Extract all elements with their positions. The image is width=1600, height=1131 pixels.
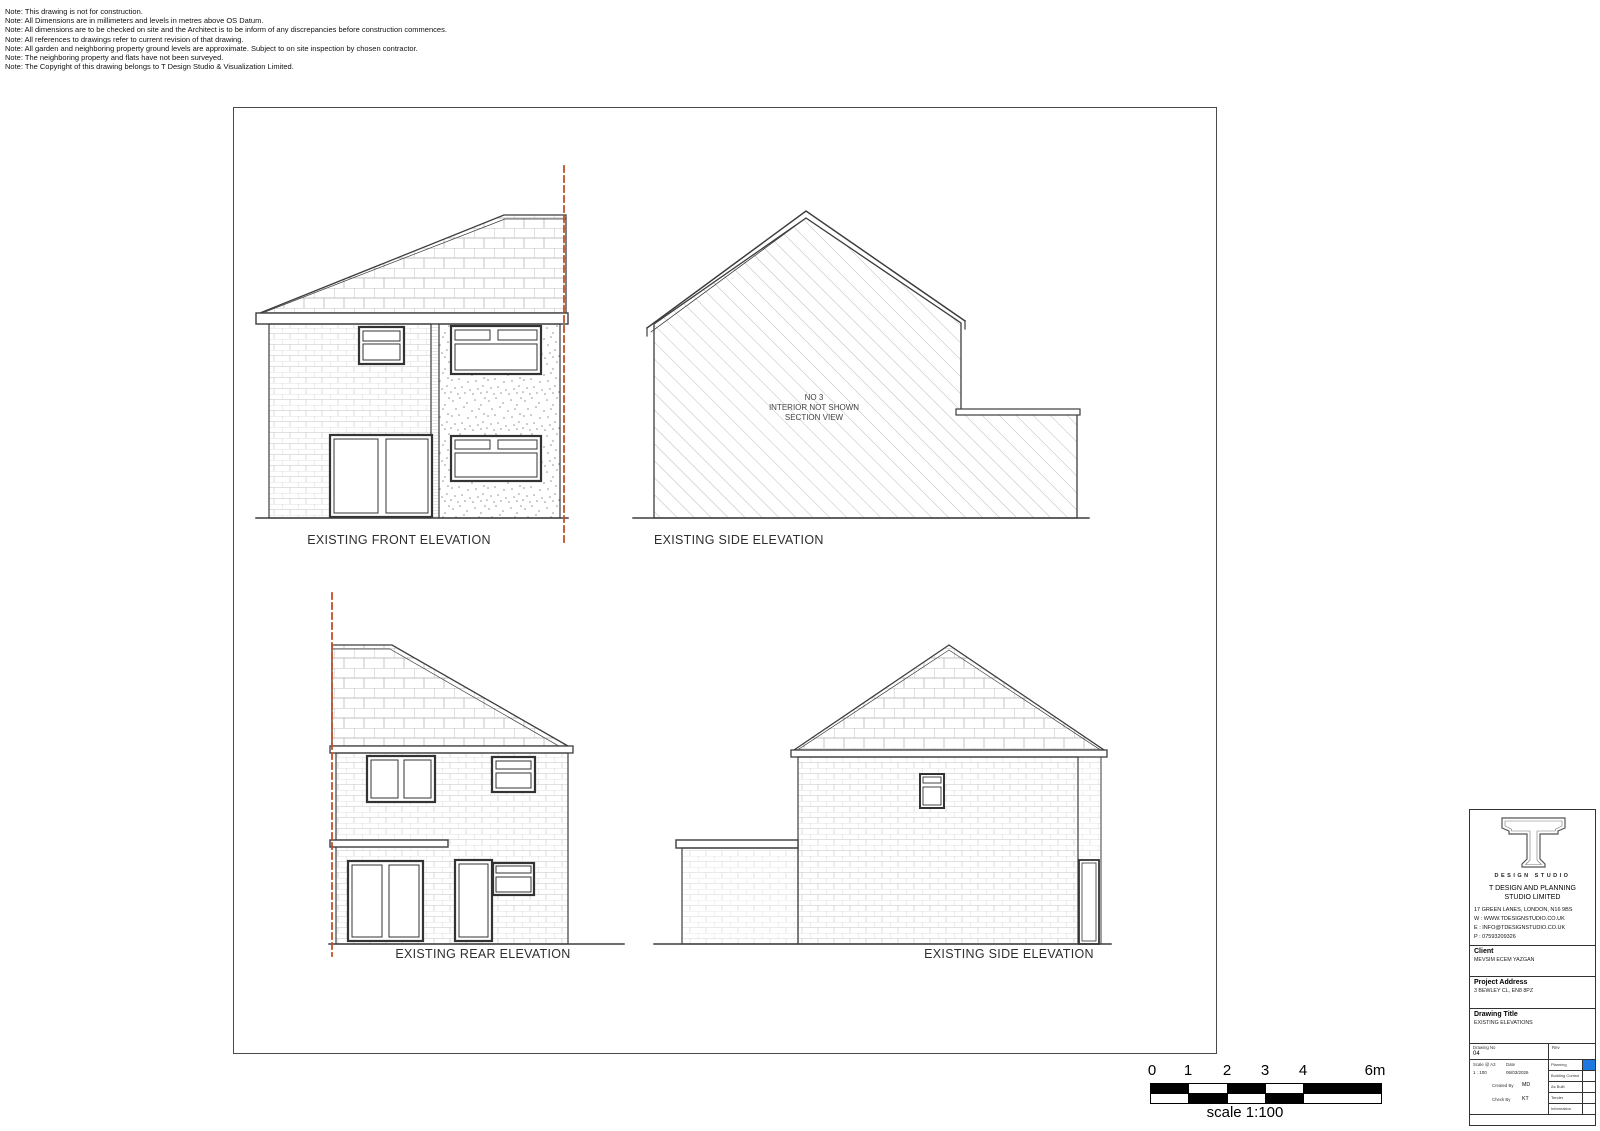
created-by-label: Created By [1492, 1083, 1514, 1088]
status-label: As Built [1549, 1082, 1582, 1092]
title-block-table: Drawing No 04 Rev Scale @ A3 1 : 100 Dat… [1470, 1043, 1595, 1122]
status-row-building-control: Building Control [1549, 1071, 1595, 1082]
section-annotation-line3: SECTION VIEW [785, 413, 844, 422]
date-value: 06/03/2026 [1506, 1070, 1529, 1075]
scale-label: Scale @ A3 [1473, 1062, 1496, 1067]
scale-value: 1 : 100 [1473, 1070, 1487, 1075]
status-column: Planning Building Control As Built Tende… [1548, 1060, 1595, 1114]
drawing-no-value: 04 [1473, 1051, 1548, 1057]
phone-line: P : 07593209326 [1474, 933, 1595, 942]
front-elevation-drawing: EXISTING FRONT ELEVATION [256, 166, 568, 547]
rear-window-ff-left [367, 756, 435, 802]
status-label: Information [1549, 1104, 1582, 1114]
status-label: Building Control [1549, 1071, 1582, 1081]
address-line: 17 GREEN LANES, LONDON, N16 9BS [1474, 906, 1595, 915]
scale-bar-ticks: 0 1 2 3 4 6m [1150, 1062, 1380, 1082]
rear-elevation-drawing: EXISTING REAR ELEVATION [329, 593, 624, 961]
side-top-elevation-label: EXISTING SIDE ELEVATION [654, 533, 824, 547]
scale-bar: 0 1 2 3 4 6m [1150, 1062, 1380, 1082]
scale-date-cell: Scale @ A3 1 : 100 Date 06/03/2026 Creat… [1470, 1060, 1548, 1114]
front-elevation-label: EXISTING FRONT ELEVATION [307, 533, 491, 547]
note-line: Note: The neighboring property and flats… [5, 53, 447, 62]
section-annotation-line1: NO 3 [805, 393, 824, 402]
front-window-lower-right [451, 436, 541, 481]
rear-elevation-label: EXISTING REAR ELEVATION [395, 947, 570, 961]
tick-label: 1 [1184, 1062, 1192, 1079]
project-address-section: Project Address 3 BEWLEY CL, EN8 8PZ [1470, 976, 1595, 1008]
note-line: Note: All garden and neighboring propert… [5, 44, 447, 53]
tick-label: 3 [1261, 1062, 1269, 1079]
client-name: MEVSIM ECEM YAZGAN [1474, 957, 1595, 963]
status-checkbox-planning-active [1582, 1060, 1595, 1070]
drawing-title-section: Drawing Title EXISTING ELEVATIONS [1470, 1008, 1595, 1043]
status-checkbox [1582, 1093, 1595, 1103]
note-line: Note: The Copyright of this drawing belo… [5, 62, 447, 71]
note-line: Note: All dimensions are to be checked o… [5, 25, 447, 34]
status-label: Tender [1549, 1093, 1582, 1103]
side-elevation-bottom-drawing: EXISTING SIDE ELEVATION [654, 645, 1111, 961]
t-logo-icon [1470, 814, 1597, 870]
side-bottom-elevation-label: EXISTING SIDE ELEVATION [924, 947, 1094, 961]
tick-label: 2 [1223, 1062, 1231, 1079]
note-line: Note: All references to drawings refer t… [5, 35, 447, 44]
title-block: DESIGN STUDIO T DESIGN AND PLANNING STUD… [1469, 809, 1596, 1126]
project-address-label: Project Address [1474, 979, 1595, 986]
side-bottom-window [920, 774, 944, 808]
side-elevation-top-drawing: NO 3 INTERIOR NOT SHOWN SECTION VIEW EXI… [633, 211, 1089, 547]
rev-cell: Rev [1548, 1044, 1595, 1059]
drawing-sheet-border: EXISTING FRONT ELEVATION NO 3 INTERIOR N… [233, 107, 1217, 1054]
drawing-title-label: Drawing Title [1474, 1011, 1595, 1018]
date-label: Date [1506, 1062, 1515, 1067]
status-checkbox [1582, 1071, 1595, 1081]
check-by-value: KT [1522, 1096, 1529, 1102]
drawing-title-value: EXISTING ELEVATIONS [1474, 1020, 1595, 1026]
scale-caption: scale 1:100 [1178, 1104, 1312, 1121]
created-by-value: MD [1522, 1082, 1530, 1088]
rev-label: Rev [1552, 1045, 1595, 1050]
side-bottom-door [1079, 860, 1099, 944]
rear-tall-window [455, 860, 492, 941]
tick-label: 0 [1148, 1062, 1156, 1079]
status-row-tender: Tender [1549, 1093, 1595, 1104]
note-line: Note: This drawing is not for constructi… [5, 7, 447, 16]
company-address-block: 17 GREEN LANES, LONDON, N16 9BS W : WWW.… [1470, 904, 1595, 945]
notes-block: Note: This drawing is not for constructi… [5, 7, 447, 71]
company-name: T DESIGN AND PLANNING STUDIO LIMITED [1470, 882, 1595, 904]
note-line: Note: All Dimensions are in millimeters … [5, 16, 447, 25]
website-line: W : WWW.TDESIGNSTUDIO.CO.UK [1474, 915, 1595, 924]
rear-window-gf-right [493, 863, 534, 895]
company-logo: DESIGN STUDIO [1470, 810, 1595, 882]
extension-wall [682, 848, 798, 944]
rear-canopy [330, 840, 448, 847]
status-row-information: Information [1549, 1104, 1595, 1114]
status-checkbox [1582, 1104, 1595, 1114]
client-section: Client MEVSIM ECEM YAZGAN [1470, 945, 1595, 976]
tick-label: 4 [1299, 1062, 1307, 1079]
flat-roof-coping [956, 409, 1080, 415]
rear-patio-doors [348, 861, 423, 941]
drawing-no-label: Drawing No [1473, 1045, 1548, 1050]
front-window-upper-left [359, 327, 404, 364]
drawing-no-cell: Drawing No 04 [1470, 1044, 1548, 1059]
status-row-planning: Planning [1549, 1060, 1595, 1071]
rear-window-ff-right [492, 757, 535, 792]
status-checkbox [1582, 1082, 1595, 1092]
scale-bar-blocks [1150, 1083, 1382, 1104]
extension-coping [676, 840, 798, 848]
status-label: Planning [1549, 1060, 1582, 1070]
front-patio-doors [330, 435, 432, 517]
status-row-as-built: As Built [1549, 1082, 1595, 1093]
section-annotation-line2: INTERIOR NOT SHOWN [769, 403, 859, 412]
project-address-value: 3 BEWLEY CL, EN8 8PZ [1474, 988, 1595, 994]
email-line: E : INFO@TDESIGNSTUDIO.CO.UK [1474, 924, 1595, 933]
client-label: Client [1474, 948, 1595, 955]
logo-text: DESIGN STUDIO [1470, 873, 1595, 879]
tick-label: 6m [1365, 1062, 1386, 1079]
check-by-label: Check By [1492, 1097, 1510, 1102]
front-window-upper-right [451, 326, 541, 374]
elevations-canvas: EXISTING FRONT ELEVATION NO 3 INTERIOR N… [234, 108, 1216, 1053]
